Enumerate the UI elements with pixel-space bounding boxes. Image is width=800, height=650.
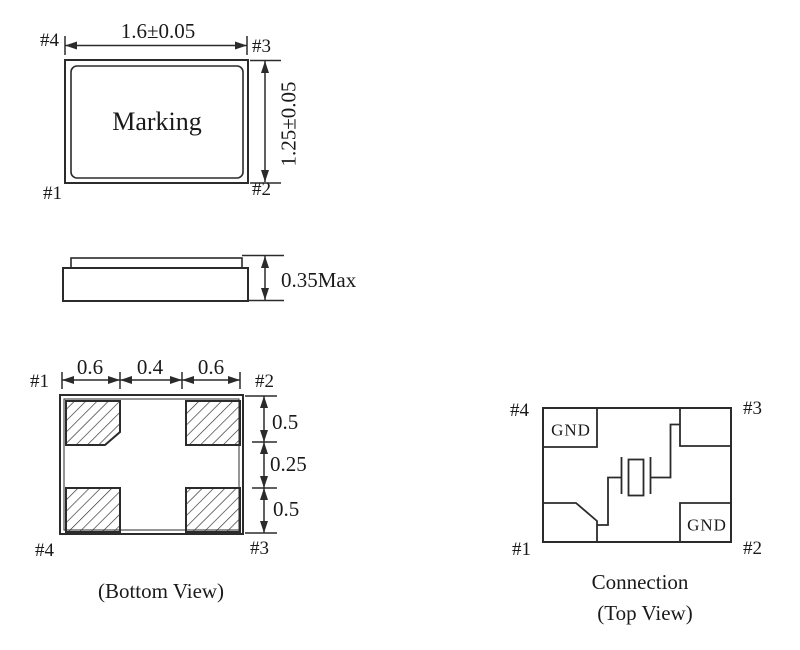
bottom-view-pin1-label: #1 — [30, 372, 49, 391]
connection-caption-sub: (Top View) — [597, 603, 692, 624]
wire-crystal-to-pin3 — [651, 425, 681, 478]
bottom-view-solder-pads — [66, 401, 240, 532]
pad-pin3-hatched — [186, 488, 240, 532]
gnd-pad-label: GND — [687, 517, 727, 534]
bottom-view-caption: (Bottom View) — [98, 581, 224, 602]
bottom-view-pin4-label: #4 — [35, 541, 54, 560]
side-view-height-dimension-label: 0.35Max — [281, 270, 356, 291]
connection-pin1-label: #1 — [512, 540, 531, 559]
crystal-symbol — [622, 457, 651, 496]
connection-pin3-label: #3 — [743, 399, 762, 418]
pad-pin1-hatched — [66, 401, 120, 445]
pad-vgap-dimension-label: 0.25 — [270, 454, 307, 475]
wire-crystal-to-pin1 — [597, 478, 622, 526]
pad-height-dimension-label: 0.5 — [273, 499, 299, 520]
package-drawing-page: #4 1.6±0.05 #3 Marking 1.25±0.05 #1 #2 0… — [0, 0, 800, 650]
top-view-pin1-label: #1 — [43, 184, 62, 203]
connection-pin2-label: #2 — [743, 539, 762, 558]
connection-caption: Connection — [592, 572, 689, 593]
connection-pin4-label: #4 — [510, 401, 529, 420]
pad-pin4-hatched — [66, 488, 120, 532]
diagram-linework — [0, 0, 800, 650]
side-view-outline — [63, 258, 248, 301]
connection-pad-3-outline — [680, 408, 731, 446]
gnd-pad-label: GND — [551, 422, 591, 439]
pad-width-dimension-label: 0.6 — [77, 357, 103, 378]
bottom-view-pin2-label: #2 — [255, 372, 274, 391]
pad-pin2-hatched — [186, 401, 240, 445]
top-view-pin4-label: #4 — [40, 31, 59, 50]
pad-width-dimension-label: 0.6 — [198, 357, 224, 378]
top-view-width-dimension-label: 1.6±0.05 — [121, 21, 196, 42]
top-view-pin3-label: #3 — [252, 37, 271, 56]
top-view-pin2-label: #2 — [252, 180, 271, 199]
pad-gap-dimension-label: 0.4 — [137, 357, 163, 378]
bottom-view-pin3-label: #3 — [250, 539, 269, 558]
marking-label: Marking — [112, 109, 202, 135]
connection-pad-1-outline — [543, 503, 597, 542]
top-view-height-dimension-label: 1.25±0.05 — [279, 81, 300, 166]
pad-height-dimension-label: 0.5 — [272, 412, 298, 433]
